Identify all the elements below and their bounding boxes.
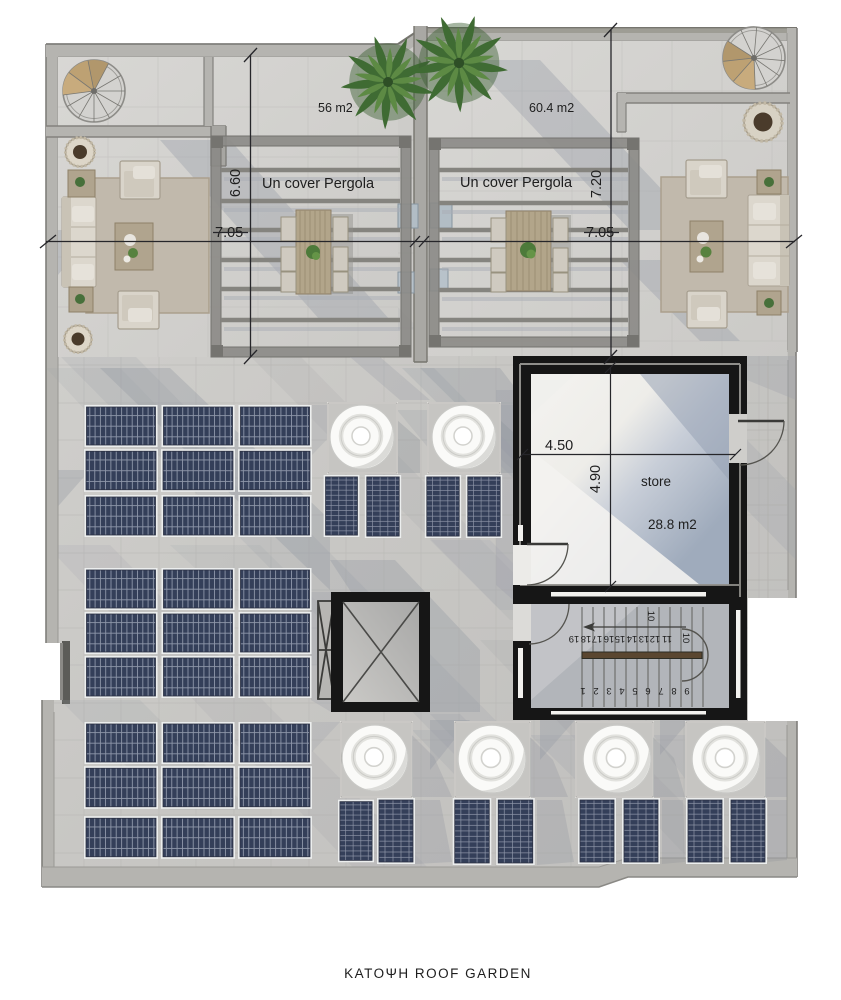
- svg-text:12: 12: [650, 633, 661, 644]
- svg-text:Un cover Pergola: Un cover Pergola: [262, 176, 375, 192]
- svg-text:56 m2: 56 m2: [318, 101, 353, 115]
- svg-text:3: 3: [606, 685, 611, 696]
- svg-text:18: 18: [581, 633, 592, 644]
- svg-text:7: 7: [658, 685, 663, 696]
- svg-text:11: 11: [662, 633, 672, 644]
- svg-text:ΚΑΤΟΨΗ ROOF GARDEN: ΚΑΤΟΨΗ ROOF GARDEN: [344, 966, 532, 981]
- svg-text:10: 10: [680, 633, 691, 644]
- svg-text:2: 2: [593, 685, 598, 696]
- svg-text:5: 5: [632, 685, 637, 696]
- svg-text:6: 6: [645, 685, 650, 696]
- svg-text:14: 14: [627, 633, 638, 644]
- svg-text:1: 1: [580, 685, 585, 696]
- svg-text:16: 16: [604, 633, 615, 644]
- svg-text:7.20: 7.20: [589, 170, 605, 198]
- svg-text:4: 4: [619, 685, 624, 696]
- svg-text:15: 15: [615, 633, 626, 644]
- svg-text:10: 10: [645, 611, 656, 622]
- svg-text:60.4 m2: 60.4 m2: [529, 101, 574, 115]
- svg-text:28.8 m2: 28.8 m2: [648, 517, 697, 532]
- svg-text:store: store: [641, 474, 671, 489]
- svg-text:Un cover Pergola: Un cover Pergola: [460, 175, 573, 191]
- svg-text:8: 8: [671, 685, 676, 696]
- svg-text:4.50: 4.50: [545, 438, 573, 454]
- svg-text:9: 9: [684, 685, 689, 696]
- svg-text:17: 17: [592, 633, 603, 644]
- svg-text:6.60: 6.60: [228, 169, 244, 197]
- svg-text:4.90: 4.90: [588, 465, 604, 493]
- svg-text:19: 19: [569, 633, 580, 644]
- svg-text:13: 13: [639, 633, 650, 644]
